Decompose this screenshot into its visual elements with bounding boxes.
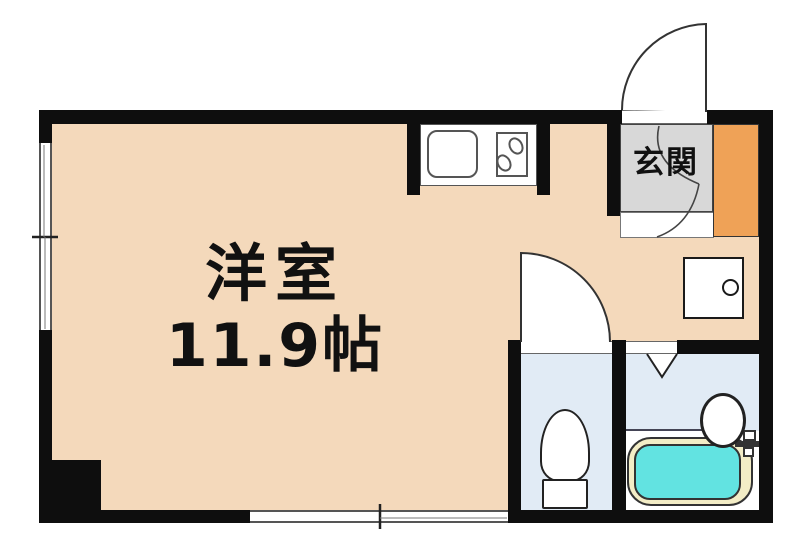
entrance-label: 玄関 bbox=[618, 148, 714, 179]
genkan-step bbox=[620, 212, 714, 238]
wall-toilet-left bbox=[508, 340, 521, 510]
wall-toilet-bath-divider bbox=[612, 340, 626, 510]
kitchen-sink bbox=[427, 130, 478, 178]
faucet-knob-icon bbox=[743, 430, 756, 441]
washbasin bbox=[700, 393, 746, 448]
wall-kitchen-stub-left bbox=[407, 124, 420, 195]
wall-bottom-left bbox=[39, 510, 250, 523]
washer-drain-icon bbox=[722, 279, 739, 296]
bath-door-threshold bbox=[626, 341, 677, 354]
entry-door-icon bbox=[622, 24, 706, 112]
wall-left-upper bbox=[39, 110, 52, 143]
toilet-door-threshold bbox=[521, 341, 612, 354]
window-left bbox=[39, 143, 52, 330]
wall-bath-top bbox=[677, 340, 773, 354]
main-room-label: 洋室 bbox=[140, 243, 410, 305]
bathroom-floor-divider bbox=[626, 429, 704, 431]
window-bottom bbox=[250, 510, 508, 523]
wall-kitchen-stub-right bbox=[537, 124, 550, 195]
wall-right bbox=[759, 110, 773, 523]
main-room-size-label: 11.9帖 bbox=[110, 316, 440, 376]
wall-bottom-right bbox=[508, 510, 773, 523]
bathtub-water bbox=[634, 444, 741, 500]
entry-door-threshold bbox=[622, 110, 707, 124]
toilet-tank bbox=[542, 479, 588, 509]
faucet-knob-icon bbox=[743, 447, 754, 457]
floor-plan: 洋室 11.9帖 玄関 bbox=[0, 0, 800, 551]
shoe-cabinet bbox=[713, 124, 759, 237]
wall-top-left bbox=[39, 110, 622, 124]
